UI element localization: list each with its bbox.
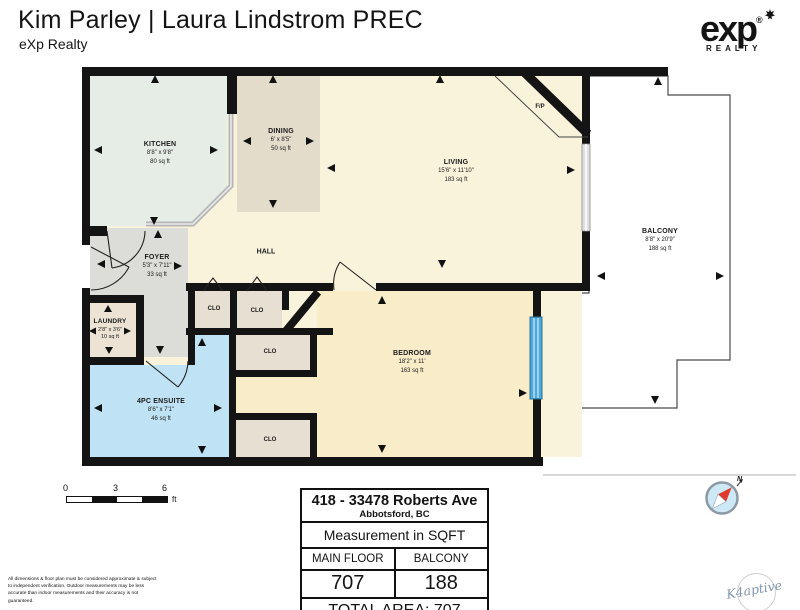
foyer-corridor-floor [144, 310, 188, 357]
address-row: 418 - 33478 Roberts Ave Abbotsford, BC [302, 490, 487, 521]
bedroom-sliding-door [530, 317, 542, 399]
scale-unit: ft [172, 495, 176, 504]
closet4-label: CLO [264, 437, 277, 443]
address-line2: Abbotsford, BC [302, 510, 487, 520]
compass-icon [702, 476, 746, 525]
ensuite-label: 4PC ENSUITE 8'6" x 7'1" 46 sq ft [137, 397, 185, 423]
living-label: LIVING 15'6" x 11'10" 183 sq ft [438, 158, 474, 184]
north-label: N [737, 476, 742, 483]
scale-tick-3: 3 [113, 483, 118, 493]
hall-label: HALL [257, 249, 276, 256]
closet3-label: CLO [264, 349, 277, 355]
scale-bar-ruler [66, 496, 168, 503]
laundry-label: LAUNDRY 2'8" x 3'6" 10 sq ft [94, 318, 127, 342]
scale-bar: 0 3 6 ft [64, 483, 184, 509]
foyer-label: FOYER 5'3" x 7'11" 33 sq ft [142, 253, 171, 279]
bedroom-label: BEDROOM 18'2" x 11' 163 sq ft [393, 349, 431, 375]
disclaimer-text: All dimensions & floor plan must be cons… [8, 576, 160, 605]
summary-table: 418 - 33478 Roberts Ave Abbotsford, BC M… [300, 488, 489, 610]
dining-label: DINING 6' x 8'5" 50 sq ft [268, 127, 294, 153]
scale-tick-0: 0 [63, 483, 68, 493]
closet-passage-floor [236, 377, 317, 413]
balcony-label: BALCONY 8'8" x 20'9" 188 sq ft [642, 227, 678, 253]
closet2-label: CLO [251, 308, 264, 314]
table-value-row: 707 188 [302, 569, 487, 597]
main-floor-header: MAIN FLOOR [302, 549, 396, 569]
scale-tick-6: 6 [162, 483, 167, 493]
living-window [582, 144, 590, 231]
floorplan-page: Kim Parley | Laura Lindstrom PREC eXp Re… [0, 0, 800, 610]
total-area: TOTAL AREA: 707 [302, 597, 487, 610]
kitchen-label: KITCHEN 8'8" x 9'8" 80 sq ft [144, 140, 177, 166]
measurement-label: Measurement in SQFT [302, 521, 487, 547]
address-line1: 418 - 33478 Roberts Ave [302, 494, 487, 510]
main-floor-value: 707 [302, 571, 396, 597]
table-header-row: MAIN FLOOR BALCONY [302, 547, 487, 569]
balcony-header: BALCONY [396, 549, 488, 569]
balcony-value: 188 [396, 571, 488, 597]
fireplace-label: F/P [535, 104, 544, 110]
closet1-label: CLO [208, 306, 221, 312]
